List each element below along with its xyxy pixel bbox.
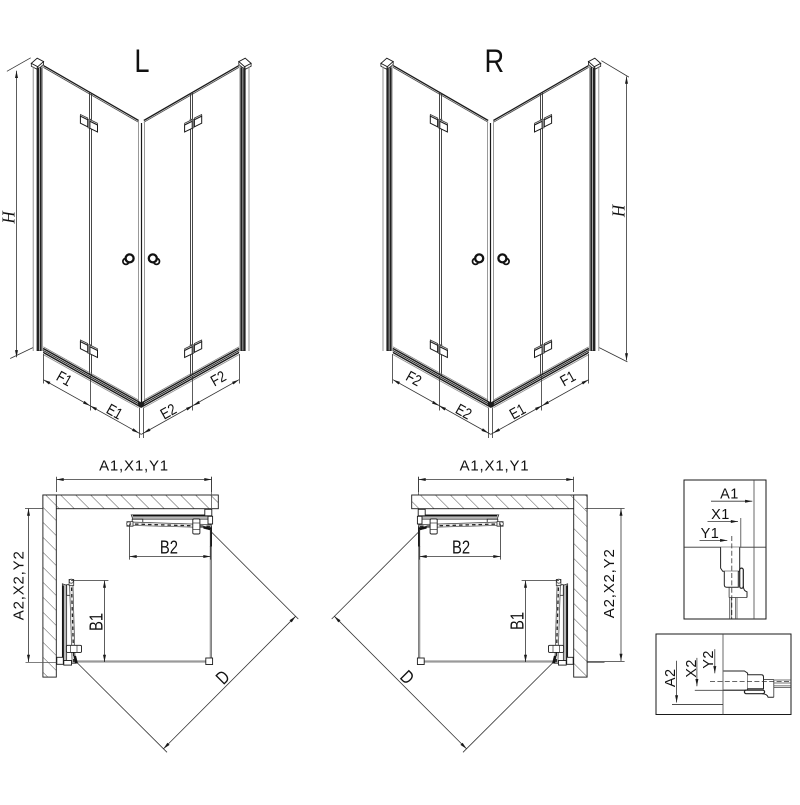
svg-text:B2: B2 (160, 537, 178, 558)
svg-text:Y1: Y1 (701, 526, 720, 542)
svg-text:B2: B2 (452, 537, 470, 558)
svg-text:A1,X1,Y1: A1,X1,Y1 (99, 457, 169, 474)
svg-text:H: H (608, 204, 629, 219)
svg-text:A2,X2,Y2: A2,X2,Y2 (11, 550, 28, 620)
svg-text:A2: A2 (663, 668, 679, 687)
svg-text:A2,X2,Y2: A2,X2,Y2 (601, 548, 618, 618)
svg-text:Y2: Y2 (701, 650, 717, 669)
svg-text:B1: B1 (507, 612, 528, 630)
svg-text:A1: A1 (720, 487, 739, 503)
svg-text:H: H (0, 210, 19, 225)
svg-text:A1,X1,Y1: A1,X1,Y1 (460, 457, 530, 474)
svg-text:X1: X1 (711, 507, 730, 523)
svg-text:X2: X2 (684, 659, 700, 678)
svg-text:B1: B1 (86, 613, 107, 631)
svg-text:L: L (134, 44, 149, 80)
svg-text:R: R (484, 44, 504, 80)
